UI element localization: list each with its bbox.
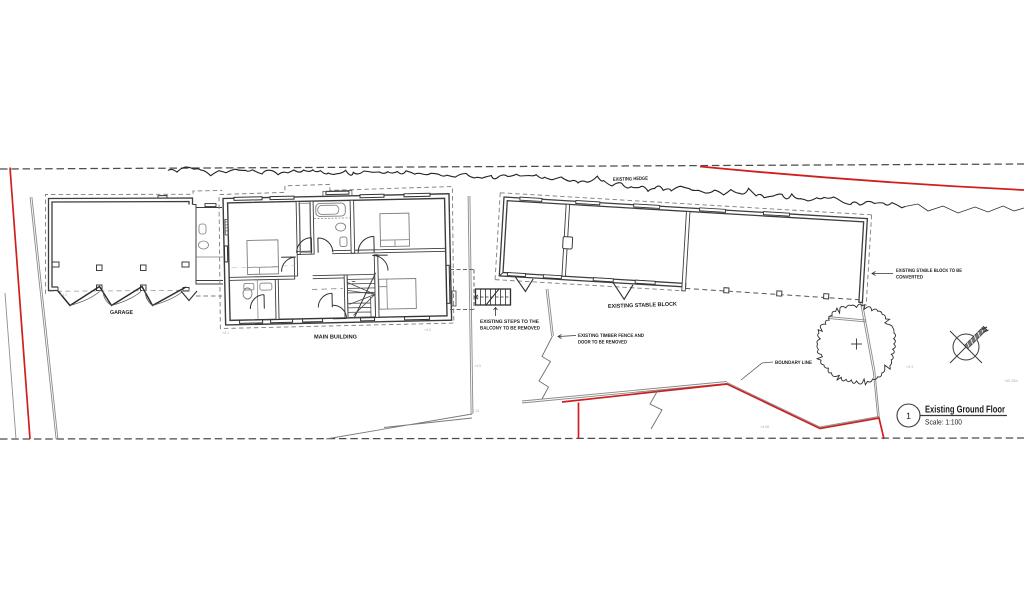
svg-text:+4.2: +4.2: [60, 293, 67, 297]
svg-text:1: 1: [906, 411, 911, 421]
svg-text:Existing Ground Floor: Existing Ground Floor: [925, 405, 1005, 416]
svg-text:+4.1: +4.1: [222, 331, 229, 335]
svg-text:+45.35m: +45.35m: [1004, 379, 1018, 383]
svg-text:GARAGE: GARAGE: [110, 310, 133, 316]
svg-text:Scale: 1:100: Scale: 1:100: [925, 418, 962, 427]
svg-text:+4.08: +4.08: [760, 425, 769, 429]
svg-text:EXISTING STABLE BLOCK TO BE: EXISTING STABLE BLOCK TO BE: [896, 268, 963, 274]
svg-text:+4.3: +4.3: [906, 365, 913, 369]
svg-text:BOUNDARY LINE: BOUNDARY LINE: [775, 360, 813, 366]
svg-text:CONVERTED: CONVERTED: [896, 275, 923, 281]
svg-text:EXISTING HEDGE: EXISTING HEDGE: [613, 176, 649, 183]
svg-text:EXISTING TIMBER FENCE AND: EXISTING TIMBER FENCE AND: [578, 333, 644, 339]
svg-text:+4.13: +4.13: [470, 409, 479, 413]
svg-text:+4.5: +4.5: [474, 364, 481, 368]
svg-text:EXISTING STEPS TO THE: EXISTING STEPS TO THE: [480, 319, 540, 325]
svg-text:DOOR TO BE REMOVED: DOOR TO BE REMOVED: [578, 340, 627, 346]
svg-text:BALCONY TO BE REMOVED: BALCONY TO BE REMOVED: [480, 326, 540, 332]
svg-text:MAIN BUILDING: MAIN BUILDING: [314, 335, 357, 341]
svg-text:+4.0: +4.0: [424, 328, 431, 332]
